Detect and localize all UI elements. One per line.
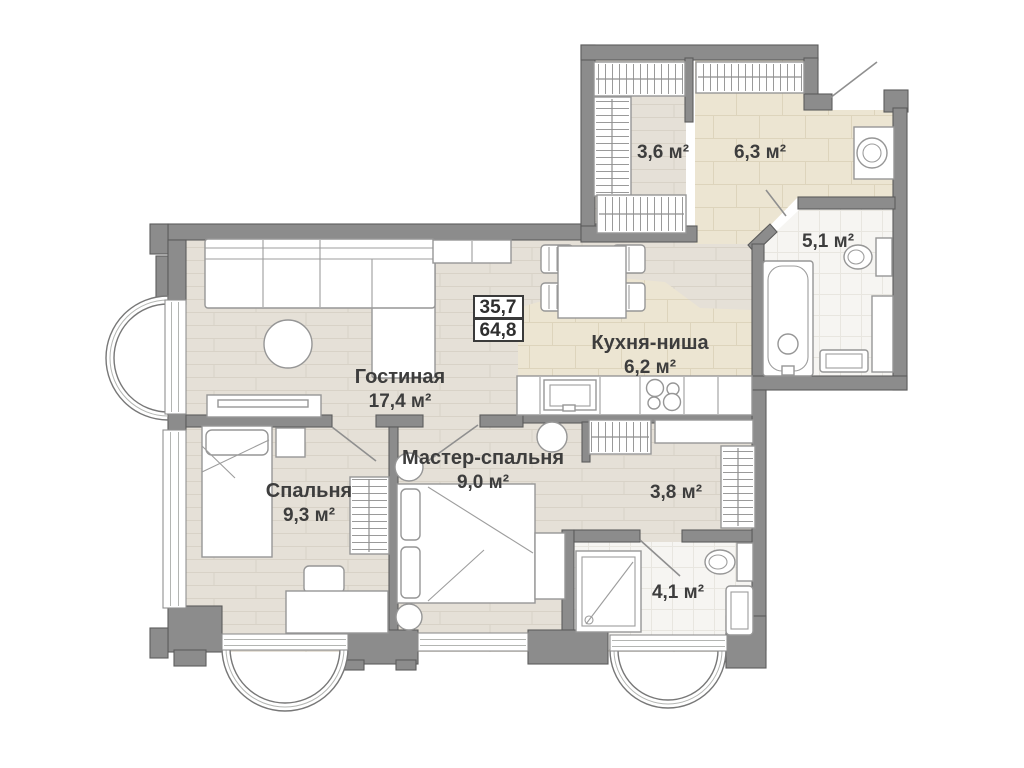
nightstand-round	[396, 604, 422, 630]
desk	[286, 591, 388, 633]
label-hallway-area: 6,3 м²	[734, 142, 786, 163]
wall-segment	[581, 45, 818, 60]
label-kitchen-name: Кухня-ниша	[591, 332, 709, 354]
stove-burner	[664, 394, 681, 411]
label-kitchen-area: 6,2 м²	[624, 357, 676, 378]
stove-burner	[648, 397, 660, 409]
tv	[218, 400, 308, 407]
dining-table	[558, 246, 626, 318]
dresser	[535, 533, 565, 599]
toilet-tank	[737, 543, 753, 581]
wall-segment	[581, 45, 595, 230]
stamp-upper-value: 35,7	[480, 297, 517, 318]
bay-window-glass-line	[614, 650, 722, 704]
window	[163, 430, 186, 608]
bathtub	[763, 261, 813, 376]
bay-window-bottom-left	[222, 648, 348, 711]
label-wardrobe-area: 3,6 м²	[637, 142, 689, 163]
nightstand	[276, 428, 305, 457]
stamp-lower-value: 64,8	[480, 320, 517, 341]
wall-segment	[682, 530, 752, 542]
door-leaf-entrance	[830, 62, 877, 98]
label-living-area: 17,4 м²	[369, 391, 432, 412]
wall-segment	[156, 256, 168, 298]
bathtub-drain	[782, 366, 794, 375]
wall-segment	[168, 224, 600, 240]
window	[418, 633, 528, 651]
window	[222, 634, 348, 650]
wall-pier	[528, 630, 608, 664]
label-bathroom-main-area: 5,1 м²	[802, 231, 854, 252]
wall-segment	[150, 224, 168, 254]
pillow	[401, 489, 420, 540]
wall-corner-pier	[168, 606, 222, 652]
coffee-table	[264, 320, 312, 368]
sink	[726, 586, 753, 635]
bay-window-glass-line	[110, 300, 168, 416]
wall-segment	[752, 244, 764, 390]
label-living-name: Гостиная	[355, 366, 445, 388]
wall-segment	[752, 376, 907, 390]
wall-entry-pier	[804, 94, 832, 110]
label-master-area: 9,0 м²	[457, 472, 509, 493]
wall-segment	[893, 108, 907, 390]
label-master-name: Мастер-спальня	[402, 447, 564, 469]
sink	[820, 350, 868, 372]
wall-corner-pier	[174, 650, 206, 666]
window	[610, 635, 727, 651]
floor-plan-page: Гостиная 17,4 м² Спальня 9,3 м² Мастер-с…	[0, 0, 1024, 768]
bathtub-faucet	[778, 334, 798, 354]
wall-segment	[798, 197, 895, 209]
label-corridor-area: 3,8 м²	[650, 482, 702, 503]
wall-segment	[376, 415, 423, 427]
desk-chair	[304, 566, 344, 593]
wall-corner-pier	[150, 628, 168, 658]
pillow	[206, 430, 268, 455]
bay-window-bottom-right	[610, 650, 726, 708]
bay-window-left	[106, 296, 168, 420]
bay-window-glass-line	[226, 648, 344, 707]
wall-segment	[480, 415, 523, 427]
floor-plan-svg: Гостиная 17,4 м² Спальня 9,3 м² Мастер-с…	[0, 0, 1024, 768]
kitchen-sink-tap	[563, 405, 575, 411]
label-bedroom-area: 9,3 м²	[283, 505, 335, 526]
washing-machine-drum	[857, 138, 887, 168]
wall-pier	[396, 660, 416, 670]
stove-burner	[647, 380, 664, 397]
label-bathroom-ensuite-area: 4,1 м²	[652, 582, 704, 603]
wall-segment	[804, 58, 818, 98]
area-stamp: 35,7 64,8	[474, 296, 523, 341]
wall-segment	[168, 240, 186, 304]
window	[165, 300, 186, 414]
hall-cabinet	[655, 420, 753, 443]
shower	[576, 551, 641, 632]
wall-segment	[685, 58, 693, 122]
wall-pier	[342, 630, 418, 664]
wall-segment	[574, 530, 640, 542]
bath-cabinet	[872, 296, 893, 372]
toilet-tank	[876, 238, 892, 276]
label-bedroom-name: Спальня	[266, 480, 352, 502]
pillow	[401, 547, 420, 598]
